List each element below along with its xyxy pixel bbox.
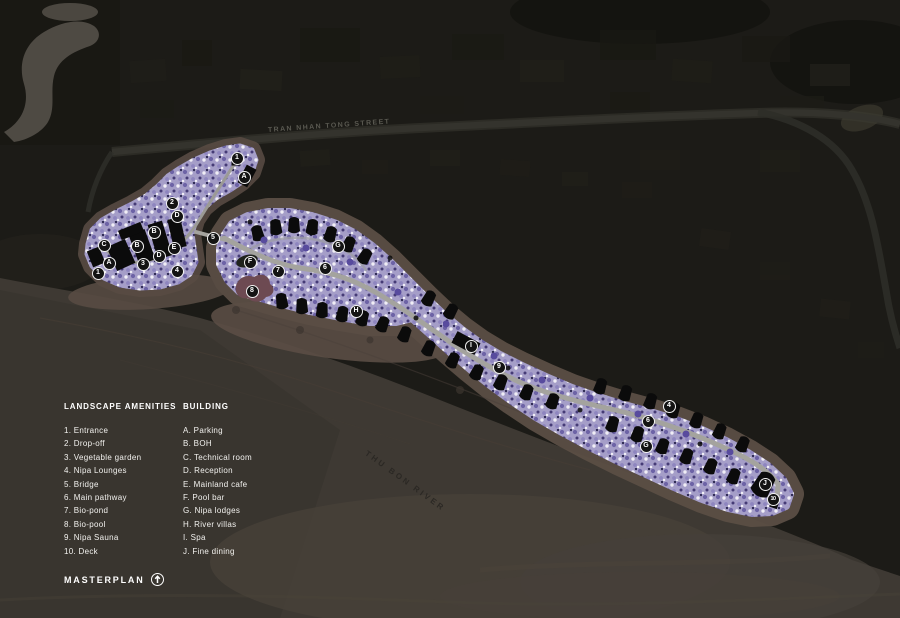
legend-column-amenities: LANDSCAPE AMENITIES 1. Entrance2. Drop-o… bbox=[64, 402, 179, 558]
legend-item: 4. Nipa Lounges bbox=[64, 464, 179, 477]
north-arrow-icon bbox=[151, 573, 164, 586]
legend-item: 9. Nipa Sauna bbox=[64, 531, 179, 544]
legend-item: 5. Bridge bbox=[64, 478, 179, 491]
map-marker-6: 6 bbox=[642, 415, 655, 428]
map-marker-A: A bbox=[238, 171, 251, 184]
legend-item: 10. Deck bbox=[64, 545, 179, 558]
map-marker-J: J bbox=[759, 478, 772, 491]
legend-item: 2. Drop-off bbox=[64, 437, 179, 450]
legend-item: F. Pool bar bbox=[183, 491, 293, 504]
legend-item: G. Nipa lodges bbox=[183, 504, 293, 517]
map-marker-C: C bbox=[98, 239, 111, 252]
map-marker-1: 1 bbox=[231, 152, 244, 165]
legend-item: A. Parking bbox=[183, 424, 293, 437]
legend-item: I. Spa bbox=[183, 531, 293, 544]
page-title: MASTERPLAN bbox=[64, 575, 145, 585]
map-marker-G: G bbox=[640, 440, 653, 453]
map-marker-B: B bbox=[148, 226, 161, 239]
legend-header-building: BUILDING bbox=[183, 402, 293, 411]
legend-item: D. Reception bbox=[183, 464, 293, 477]
legend-list-amenities: 1. Entrance2. Drop-off3. Vegetable garde… bbox=[64, 424, 179, 558]
map-marker-3: 3 bbox=[137, 258, 150, 271]
legend-item: 3. Vegetable garden bbox=[64, 451, 179, 464]
map-marker-2: 2 bbox=[166, 197, 179, 210]
legend-list-building: A. ParkingB. BOHC. Technical roomD. Rece… bbox=[183, 424, 293, 558]
map-marker-D: D bbox=[171, 210, 184, 223]
legend-item: 7. Bio-pond bbox=[64, 504, 179, 517]
map-marker-9: 9 bbox=[493, 361, 506, 374]
legend-item: 1. Entrance bbox=[64, 424, 179, 437]
map-marker-H: H bbox=[350, 305, 363, 318]
map-marker-4: 4 bbox=[663, 400, 676, 413]
map-marker-6: 6 bbox=[319, 262, 332, 275]
legend-item: E. Mainland cafe bbox=[183, 478, 293, 491]
map-marker-5: 5 bbox=[207, 232, 220, 245]
legend-item: 6. Main pathway bbox=[64, 491, 179, 504]
masterplan-page: TRAN NHAN TONG STREET THU BON RIVER 1A2D… bbox=[0, 0, 900, 618]
map-marker-10: 10 bbox=[767, 493, 780, 506]
map-marker-E: E bbox=[168, 242, 181, 255]
map-marker-1: 1 bbox=[92, 267, 105, 280]
footer: MASTERPLAN bbox=[64, 573, 164, 586]
map-marker-G: G bbox=[332, 240, 345, 253]
legend-column-building: BUILDING A. ParkingB. BOHC. Technical ro… bbox=[183, 402, 293, 558]
legend-item: 8. Bio-pool bbox=[64, 518, 179, 531]
map-marker-7: 7 bbox=[272, 265, 285, 278]
legend-header-amenities: LANDSCAPE AMENITIES bbox=[64, 402, 179, 411]
legend-item: B. BOH bbox=[183, 437, 293, 450]
map-marker-8: 8 bbox=[246, 285, 259, 298]
map-marker-A: A bbox=[103, 257, 116, 270]
legend-item: H. River villas bbox=[183, 518, 293, 531]
map-marker-B: B bbox=[131, 240, 144, 253]
map-marker-D: D bbox=[153, 250, 166, 263]
map-marker-4: 4 bbox=[171, 265, 184, 278]
map-marker-F: F bbox=[244, 256, 257, 269]
map-marker-I: I bbox=[465, 340, 478, 353]
legend-item: J. Fine dining bbox=[183, 545, 293, 558]
legend-item: C. Technical room bbox=[183, 451, 293, 464]
